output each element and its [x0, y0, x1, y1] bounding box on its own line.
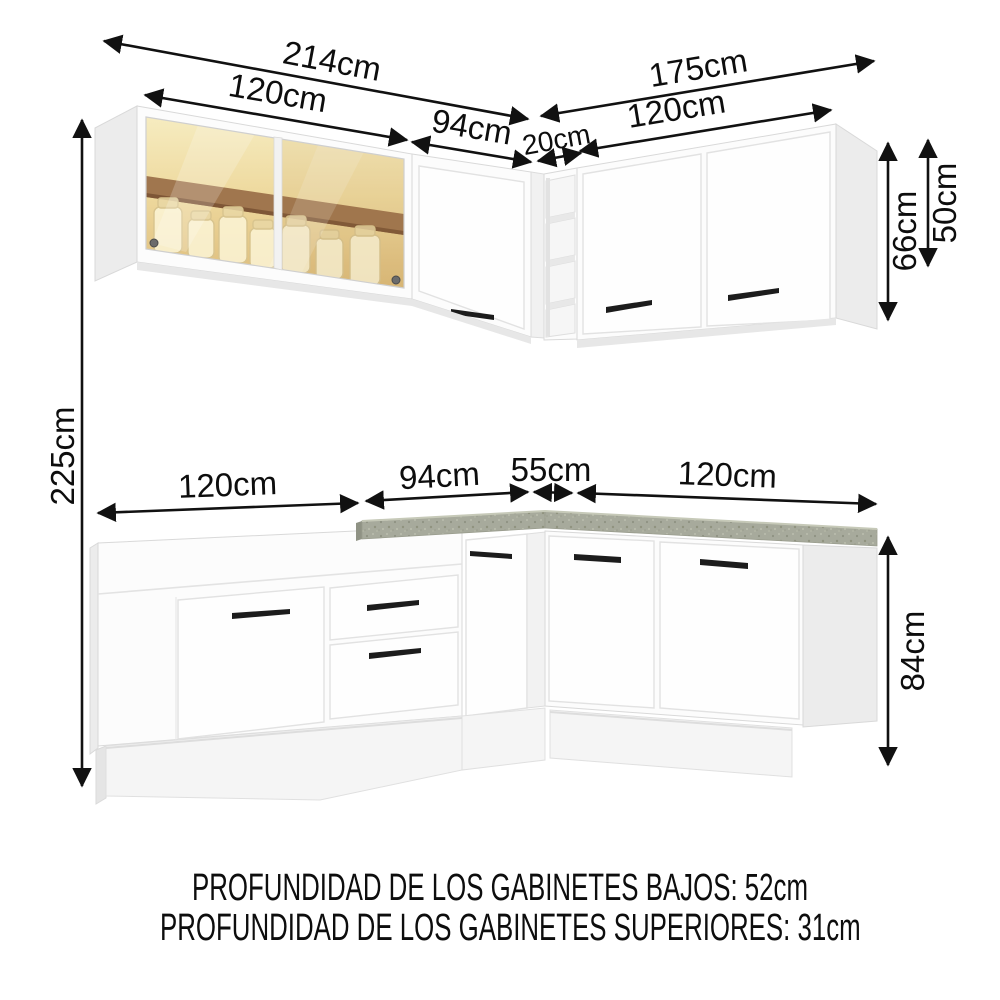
note-depth-base: PROFUNDIDAD DE LOS GABINETES BAJOS: 52cm: [160, 868, 840, 908]
glass-door-knob: [392, 276, 400, 284]
base-right-door-1: [549, 536, 654, 708]
base-right-cabinet: [545, 531, 877, 727]
dimension-label-55: 55cm: [511, 451, 592, 488]
dimension-base-94: 94cm: [366, 455, 528, 501]
dimension-label-base-94: 94cm: [398, 455, 481, 496]
upper-open-shelf: [544, 168, 577, 340]
dimension-overall-height-225: 225cm: [44, 120, 82, 786]
shelf-inner-shadow: [546, 178, 550, 336]
base-corner-door: [466, 534, 527, 716]
dimension-shelf-20: 20cm: [520, 118, 593, 161]
note-depth-upper: PROFUNDIDAD DE LOS GABINETES SUPERIORES:…: [160, 908, 840, 948]
dimension-label-upper-94: 94cm: [429, 102, 515, 152]
base-right-side-panel: [803, 545, 877, 727]
dimension-base-height-84: 84cm: [888, 537, 931, 765]
dimension-upper-height-66: 66cm: [886, 143, 923, 320]
dimension-label-base-left-120: 120cm: [177, 464, 277, 505]
dimension-base-left-120: 120cm: [98, 464, 358, 513]
right-upper-door-1: [583, 154, 701, 334]
dimension-label-20: 20cm: [520, 118, 593, 161]
dimension-label-66: 66cm: [886, 191, 923, 272]
base-drawer-2: [330, 632, 458, 719]
sliding-door-divider: [274, 137, 282, 270]
dimension-label-upper-right-120: 120cm: [624, 82, 728, 135]
dimension-label-84: 84cm: [894, 611, 931, 692]
dimension-upper-height-50: 50cm: [926, 140, 963, 266]
right-upper-side-panel: [836, 124, 877, 329]
base-right-door-2: [660, 542, 799, 719]
dimension-base-55: 55cm: [511, 451, 592, 493]
base-left-cabinet: [90, 526, 462, 754]
dimension-upper-corner-94: 94cm: [412, 102, 531, 162]
upper-right-cabinet: [577, 124, 877, 348]
kitchen-dimension-diagram: 214cm 120cm 94cm 20cm 175cm 120cm 66cm 5…: [0, 0, 1000, 1000]
upper-corner-cabinet: [412, 154, 544, 344]
base-left-door: [178, 587, 324, 739]
dimension-label-base-right-120: 120cm: [677, 454, 777, 495]
upper-glass-cabinet: [95, 106, 412, 306]
kitchen-illustration: 214cm 120cm 94cm 20cm 175cm 120cm 66cm 5…: [0, 0, 1000, 1000]
glass-door-knob: [150, 239, 158, 247]
depth-notes: PROFUNDIDAD DE LOS GABINETES BAJOS: 52cm…: [0, 868, 1000, 948]
glass-cabinet-side-panel: [95, 106, 137, 281]
base-corner-cabinet: [466, 532, 545, 716]
right-upper-door-2: [707, 132, 830, 326]
dimension-base-right-120: 120cm: [578, 454, 876, 504]
dimension-label-50: 50cm: [926, 163, 963, 244]
dimension-label-225: 225cm: [44, 406, 81, 505]
